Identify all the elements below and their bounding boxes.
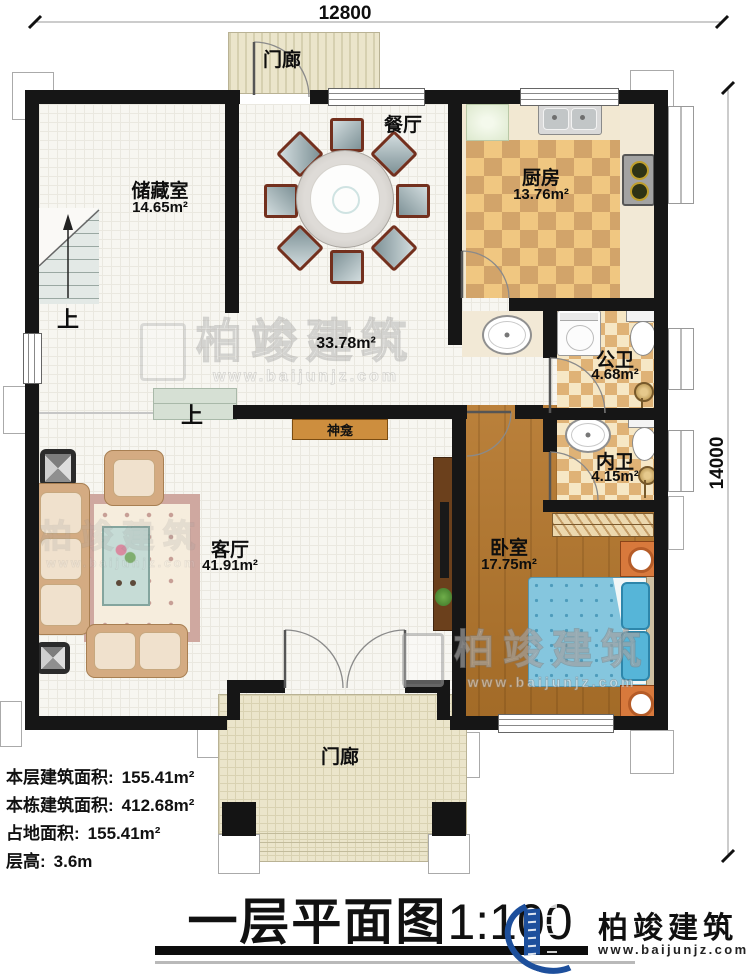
wardrobe	[552, 513, 654, 537]
floor-plan-page: 柏竣建筑 www.baijunjz.com 柏竣建筑 www.baijunjz.…	[0, 0, 750, 976]
room-area-public-bath: 4.68m²	[570, 366, 660, 383]
window	[520, 88, 619, 106]
coffee-table	[102, 526, 150, 606]
pier-base	[630, 730, 674, 774]
shrine-bar: 神龛	[292, 419, 388, 440]
armchair	[104, 450, 164, 506]
wall-segment	[543, 408, 668, 420]
wall-segment	[25, 90, 39, 333]
kitchen-sink	[538, 101, 602, 135]
floor-level-line	[39, 412, 153, 414]
room-label-dining: 餐厅	[363, 110, 443, 137]
stat-floor-area: 本层建筑面积:155.41m²	[6, 764, 194, 792]
stairs-up-label: 上	[54, 302, 82, 334]
nightstand	[620, 541, 658, 577]
pier-base	[668, 496, 684, 550]
wall-segment	[310, 90, 330, 104]
lamp-side-table	[40, 449, 76, 487]
wall-segment	[509, 298, 668, 311]
wall-segment	[227, 693, 240, 720]
wall-segment	[225, 104, 239, 313]
dining-chair	[330, 118, 364, 152]
wall-segment	[233, 405, 467, 419]
brand-url: www.baijunjz.com	[598, 942, 749, 957]
stat-label: 本栋建筑面积:	[6, 796, 114, 815]
porch-column-base	[428, 834, 470, 874]
window	[23, 333, 42, 384]
dining-chair	[396, 184, 430, 218]
room-area-living: 41.91m²	[180, 557, 280, 574]
hall-washbasin	[482, 315, 532, 355]
step-up-label: 上	[178, 398, 206, 430]
wall-segment	[227, 680, 285, 693]
wall-segment	[437, 693, 450, 720]
porch-column	[432, 802, 466, 836]
wall-segment	[543, 420, 557, 452]
room-area-kitchen: 13.76m²	[491, 186, 591, 203]
wall-segment	[25, 382, 39, 730]
wall-segment	[423, 90, 520, 104]
sofa-three-seat	[32, 483, 90, 635]
dimension-width: 12800	[300, 3, 390, 25]
brand-name: 柏竣建筑	[598, 903, 738, 947]
wall-segment	[612, 716, 668, 730]
sofa-two-seat	[86, 624, 188, 678]
fridge	[466, 104, 509, 141]
dining-chair	[330, 250, 364, 284]
bed-pillow	[621, 582, 650, 630]
wall-segment	[543, 311, 557, 358]
room-area-storage: 14.65m²	[110, 199, 210, 216]
private-bath-bay-window	[668, 430, 694, 492]
wall-segment	[515, 405, 543, 419]
stat-building-area: 本栋建筑面积:412.68m²	[6, 792, 194, 820]
wall-segment	[450, 716, 498, 730]
public-shower-head	[634, 382, 654, 402]
area-stats-block: 本层建筑面积:155.41m² 本栋建筑面积:412.68m² 占地面积:155…	[6, 764, 194, 876]
room-label-porch-bottom: 门廊	[300, 742, 380, 769]
window	[328, 88, 425, 106]
brand-logo-icon	[500, 895, 592, 967]
wall-segment	[448, 104, 462, 300]
stat-value: 3.6m	[54, 852, 93, 871]
lamp-side-table	[36, 642, 70, 674]
stat-value: 412.68m²	[122, 796, 195, 815]
stat-value: 155.41m²	[122, 768, 195, 787]
plant	[435, 588, 452, 606]
wall-segment	[25, 716, 227, 730]
bed-pillow	[621, 631, 650, 681]
room-area-hallway: 33.78m²	[306, 335, 386, 353]
porch-column	[222, 802, 256, 836]
wall-segment	[405, 680, 450, 693]
stat-value: 155.41m²	[88, 824, 161, 843]
stat-label: 本层建筑面积:	[6, 768, 114, 787]
public-bath-bay-window	[668, 328, 694, 390]
stat-floor-height: 层高:3.6m	[6, 848, 194, 876]
wall-segment	[543, 500, 668, 512]
dining-chair	[264, 184, 298, 218]
wall-segment	[448, 298, 462, 345]
window	[498, 714, 614, 733]
pier-base	[0, 701, 22, 747]
stat-label: 占地面积:	[6, 824, 80, 843]
room-label-porch-top: 门廊	[242, 45, 322, 72]
room-area-private-bath: 4.15m²	[570, 468, 660, 485]
stat-label: 层高:	[6, 852, 46, 871]
dining-table-center	[332, 186, 360, 214]
dimension-height: 14000	[707, 413, 729, 513]
shrine-label: 神龛	[327, 420, 353, 439]
kitchen-bay-window	[668, 106, 694, 204]
stove	[622, 154, 655, 206]
tv	[440, 502, 449, 578]
drawing-title-text: 一层平面图	[187, 894, 447, 950]
room-area-bedroom: 17.75m²	[459, 556, 559, 573]
porch-column-base	[218, 834, 260, 874]
wall-segment	[25, 90, 240, 104]
stat-land-area: 占地面积:155.41m²	[6, 820, 194, 848]
